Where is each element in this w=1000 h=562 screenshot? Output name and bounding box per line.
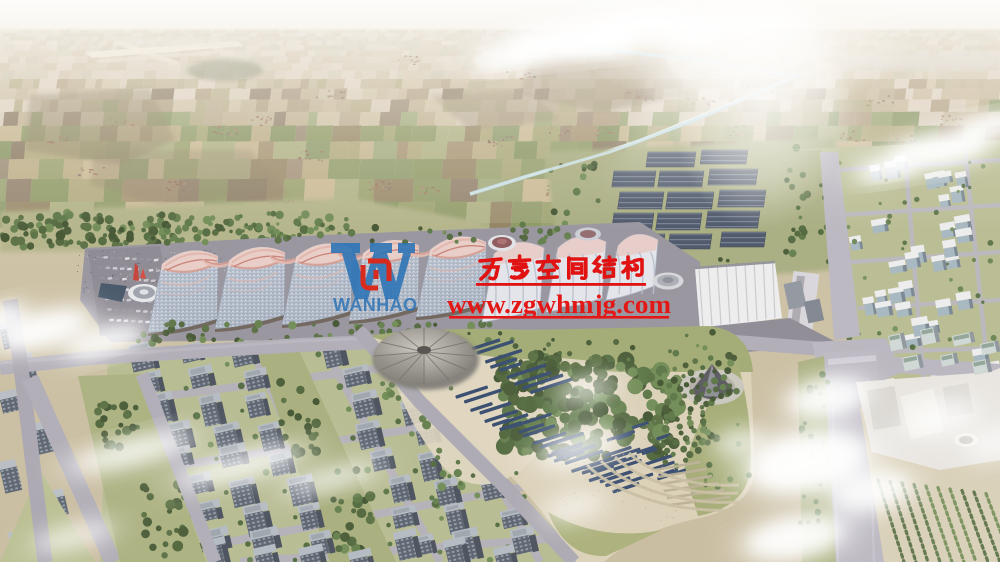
svg-text:www.zgwhmjg.com: www.zgwhmjg.com	[447, 290, 671, 319]
svg-text:WANHAO: WANHAO	[333, 295, 417, 315]
